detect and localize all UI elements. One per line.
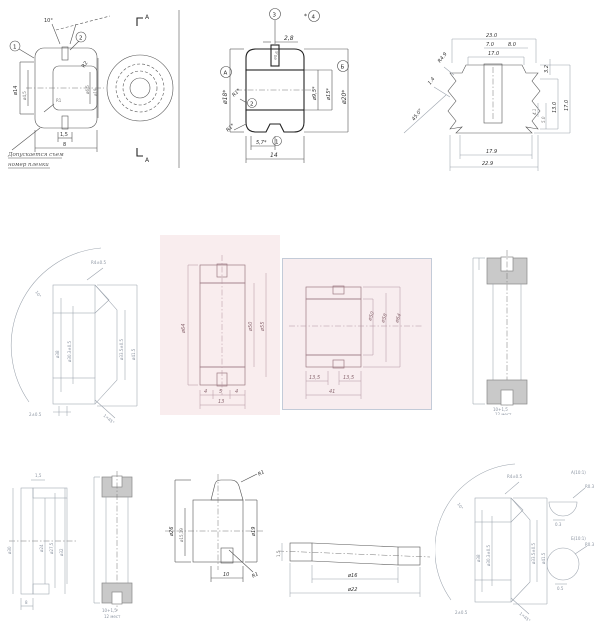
drawings-collage: 10° 1 2 ø14 ø4,5 R2 ø6,5 ø19 R1 1,5 8 A … <box>0 0 601 622</box>
dim-label: ø20* <box>341 90 348 105</box>
drawing-cup-section: ø30 ø24 ø27,5 ø32 1,5 8 <box>5 460 95 620</box>
section-arrow-bottom <box>137 148 143 156</box>
dim-label: ø41.5 <box>131 348 136 360</box>
dim-label: 12 мест <box>495 412 512 415</box>
dim-label: 22.9 <box>482 161 493 167</box>
dim-label: ø4,5 <box>22 91 27 100</box>
top-flange-hatched <box>475 498 511 522</box>
dim-label: ø50 <box>248 322 254 332</box>
dim-label: 7.0 <box>486 42 494 48</box>
bottom-flange-hatched <box>53 378 95 404</box>
dim-label: 13,5 <box>343 375 354 381</box>
bottom-flange-hatched <box>475 580 511 602</box>
dim-label: ø38 <box>55 350 60 358</box>
drawing-spool-section: 2,8 ø0,6 3 * 4 ø18* А R1* 2 R1* 1 ø9,5* … <box>180 0 380 215</box>
dim-label: 0.3 <box>555 522 562 527</box>
dim-label: ø19 <box>251 527 257 537</box>
dim-label: ø19 <box>93 88 98 96</box>
drawing-flat-ring-section: 1,5 ø16 ø22 <box>270 495 435 605</box>
dim-label: ø24 <box>39 544 44 552</box>
drawing-pencil-bushing-1: 10° ø38 ø30.3±0.5 ø33.5±0.5 ø41.5 R4±0.5… <box>5 230 155 425</box>
dim-label: 8 <box>25 600 28 605</box>
dim-label: 17.9 <box>486 149 497 155</box>
top-slot <box>62 47 68 60</box>
section-label: A <box>145 14 150 21</box>
dim-label: ø41.5 <box>541 552 546 564</box>
body-outline <box>306 299 361 355</box>
dim-label: 1.4 <box>427 76 437 86</box>
detail-b-title: Б(10:1) <box>571 536 586 541</box>
dim-label: 5.0 <box>541 116 546 123</box>
dim-label: ø6,5 <box>85 85 90 94</box>
dim-label: ø33.5±0.5 <box>531 542 536 564</box>
front-view-hole <box>130 78 150 98</box>
callout-2: 2 <box>250 102 254 108</box>
callout-3: 3 <box>273 13 277 19</box>
dim-label: 2±0.5 <box>29 412 42 417</box>
dim-label: R0.3 <box>585 542 595 547</box>
top-band-hatched <box>200 265 245 283</box>
dim-label: 5,7* <box>256 140 267 146</box>
bottom-notch <box>501 390 513 405</box>
dim-label: 2±0.5 <box>455 610 468 615</box>
dim-label: 13.0 <box>552 102 558 113</box>
dim-label: 2,8 <box>284 35 294 42</box>
dim-label: 23.0 <box>486 33 497 39</box>
callout-4: 4 <box>312 15 316 21</box>
dim-label: 1×45° <box>102 413 115 425</box>
top-band-hatched <box>306 287 361 299</box>
dim-label: ø22 <box>347 587 357 593</box>
dim-label: 1×45° <box>518 611 531 622</box>
dim-label: R0.3 <box>585 484 595 489</box>
top-flange-hatched <box>53 285 95 313</box>
dim-label: 1,5 <box>276 550 281 557</box>
dim-label: 17.0 <box>488 51 499 57</box>
drawing-note: Допускается съем <box>7 152 64 158</box>
bottom-notch <box>112 592 122 604</box>
drawing-note: номер пленки <box>8 162 49 168</box>
relief-notch <box>221 548 233 563</box>
dim-label: 45.0° <box>411 107 424 122</box>
cup-bottom-foot <box>33 584 49 594</box>
drawing-pink-grommet-card: ø50 ø58 ø64 13,5 13,5 41 <box>282 258 432 410</box>
dim-label: ø30 <box>7 546 12 554</box>
dim-label: 13,5 <box>309 375 320 381</box>
dim-label: ø9,5* <box>312 86 318 101</box>
dim-label: ø14 <box>13 86 19 95</box>
dim-label: 8 <box>63 142 66 148</box>
cup-top-flange <box>33 488 67 498</box>
dim-label: ø30.3±0.5 <box>486 544 491 566</box>
drawing-pencil-bushing-2: 10° ø38 ø30.3±0.5 ø33.5±0.5 ø41.5 R4±0.5… <box>435 450 601 622</box>
drawing-grommet-section-front: 10° 1 2 ø14 ø4,5 R2 ø6,5 ø19 R1 1,5 8 A … <box>0 0 200 200</box>
dim-label: ø15,19 <box>179 528 184 542</box>
dim-label: 10+1,5 <box>102 608 117 613</box>
dim-label: ø26 <box>169 527 175 537</box>
dim-label: ø64 <box>181 324 187 334</box>
front-view-dashed-circle <box>123 71 157 105</box>
drawing-flanged-bushing: R1 R1 ø26 ø15,19 ø19 10 <box>165 468 275 593</box>
callout-a: А <box>224 71 228 77</box>
dim-label: ø30.3±0.5 <box>67 340 72 362</box>
section-label: A <box>145 157 150 164</box>
bottom-band-hatched <box>306 355 361 367</box>
outer-profile-line <box>511 498 530 602</box>
dim-label: 0.5 <box>557 586 564 591</box>
dim-label: ø18* <box>222 90 229 105</box>
svg-text:*: * <box>304 13 307 20</box>
dim-label: ø0,6 <box>272 50 279 60</box>
dim-label: ø27,5 <box>49 542 54 554</box>
dim-label: 1,5 <box>60 132 68 138</box>
dim-label: ø15* <box>326 88 332 101</box>
dim-label: ø55 <box>260 322 266 332</box>
dim-label: 12 мест <box>104 614 121 619</box>
dim-label: 10° <box>44 18 53 24</box>
dim-label: 5 <box>219 389 222 395</box>
dim-label: ø58 <box>380 313 389 325</box>
section-arrow-top <box>137 18 143 26</box>
dim-label: R2 <box>81 60 90 69</box>
dim-label: R4±0.5 <box>507 474 522 479</box>
dim-label: ø16 <box>347 573 357 579</box>
dim-label: ø38 <box>476 554 481 562</box>
dim-label: 41 <box>329 389 335 395</box>
dim-label: R1 <box>251 571 260 580</box>
callout-2: 2 <box>79 36 83 42</box>
dim-label: ø64 <box>394 313 403 325</box>
dim-label: 13 <box>218 399 224 405</box>
dim-label: R1 <box>56 98 62 103</box>
dim-label: ø33.5±0.5 <box>119 338 124 360</box>
detail-a-title: А(10:1) <box>571 470 586 475</box>
flange-hatched <box>211 480 243 500</box>
dim-label: R1 <box>257 469 266 478</box>
dim-label: R4.9 <box>437 52 449 65</box>
dim-label: 4 <box>204 389 207 395</box>
dim-label: ø50 <box>367 311 376 323</box>
lip-line <box>95 285 109 313</box>
construction-arc <box>11 248 101 402</box>
dim-label: 17.0 <box>564 100 570 111</box>
drawing-gray-flange-profile-2: 10+1,5 12 мест <box>88 465 148 620</box>
callout-1: 1 <box>13 45 17 51</box>
dim-label: 10° <box>456 502 464 511</box>
bottom-cap-hatched <box>246 110 304 132</box>
drawing-gray-flange-profile-1: 10+1,5 12 мест <box>455 240 565 415</box>
detail-b-shape <box>547 548 579 580</box>
bottom-band-hatched <box>200 367 245 385</box>
dim-label: 4.1 <box>532 109 537 115</box>
body-outline <box>200 283 245 367</box>
detail-a-shape <box>549 502 577 516</box>
dim-label: 3.2 <box>544 65 550 73</box>
callout-1: 1 <box>275 140 279 146</box>
bottom-slot <box>62 116 68 129</box>
drawing-ribbed-plug: 23.0 7.0 8.0 17.0 R4.9 1.4 45.0° 3.2 4.1… <box>388 15 601 195</box>
dim-label: 10° <box>34 290 42 299</box>
dim-label: ø32 <box>59 548 64 556</box>
dim-label: R1* <box>231 87 242 98</box>
callout-b: Б <box>341 65 345 71</box>
dim-label: R4±0.5 <box>91 260 106 265</box>
dim-label: 4 <box>235 389 238 395</box>
dim-label: 14 <box>270 152 278 159</box>
dim-label: 10 <box>223 572 229 578</box>
dim-label: 8.0 <box>508 42 516 48</box>
front-view-outer-circle <box>107 55 173 121</box>
drawing-pink-grommet-vertical: ø64 ø50 ø55 4 5 4 13 <box>160 235 280 415</box>
dim-label: 1,5 <box>35 473 42 478</box>
